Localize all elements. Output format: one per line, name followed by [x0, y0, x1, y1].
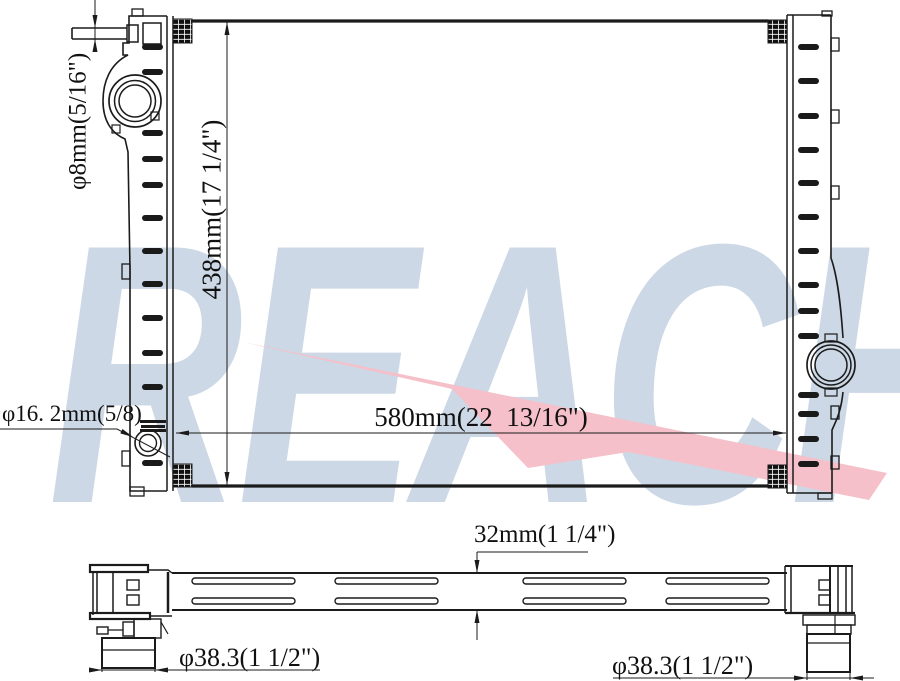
core-tube-slots — [192, 578, 769, 604]
dim-label-width: 580mm(22 13/16") — [331, 402, 631, 433]
dim-label-top-pipe: φ8mm(5/16") — [65, 41, 94, 201]
right-tank-profile — [785, 565, 855, 672]
dim-label-right-pipe: φ38.3(1 1/2") — [612, 651, 753, 681]
dim-label-thickness: 32mm(1 1/4") — [474, 521, 615, 550]
dim-label-side-port: φ16. 2mm(5/8) — [2, 401, 142, 427]
left-tank-slots — [140, 44, 166, 466]
left-tank-profile — [90, 565, 172, 668]
dim-label-height: 438mm(17 1/4") — [196, 86, 227, 334]
dim-label-left-pipe: φ38.3(1 1/2") — [179, 643, 320, 673]
dim-line-thickness — [475, 552, 589, 640]
right-tank-slots — [798, 44, 819, 467]
leader-side-port — [0, 429, 170, 457]
drawing-linework — [0, 0, 900, 681]
radiator-technical-drawing: REACH — [0, 0, 900, 681]
